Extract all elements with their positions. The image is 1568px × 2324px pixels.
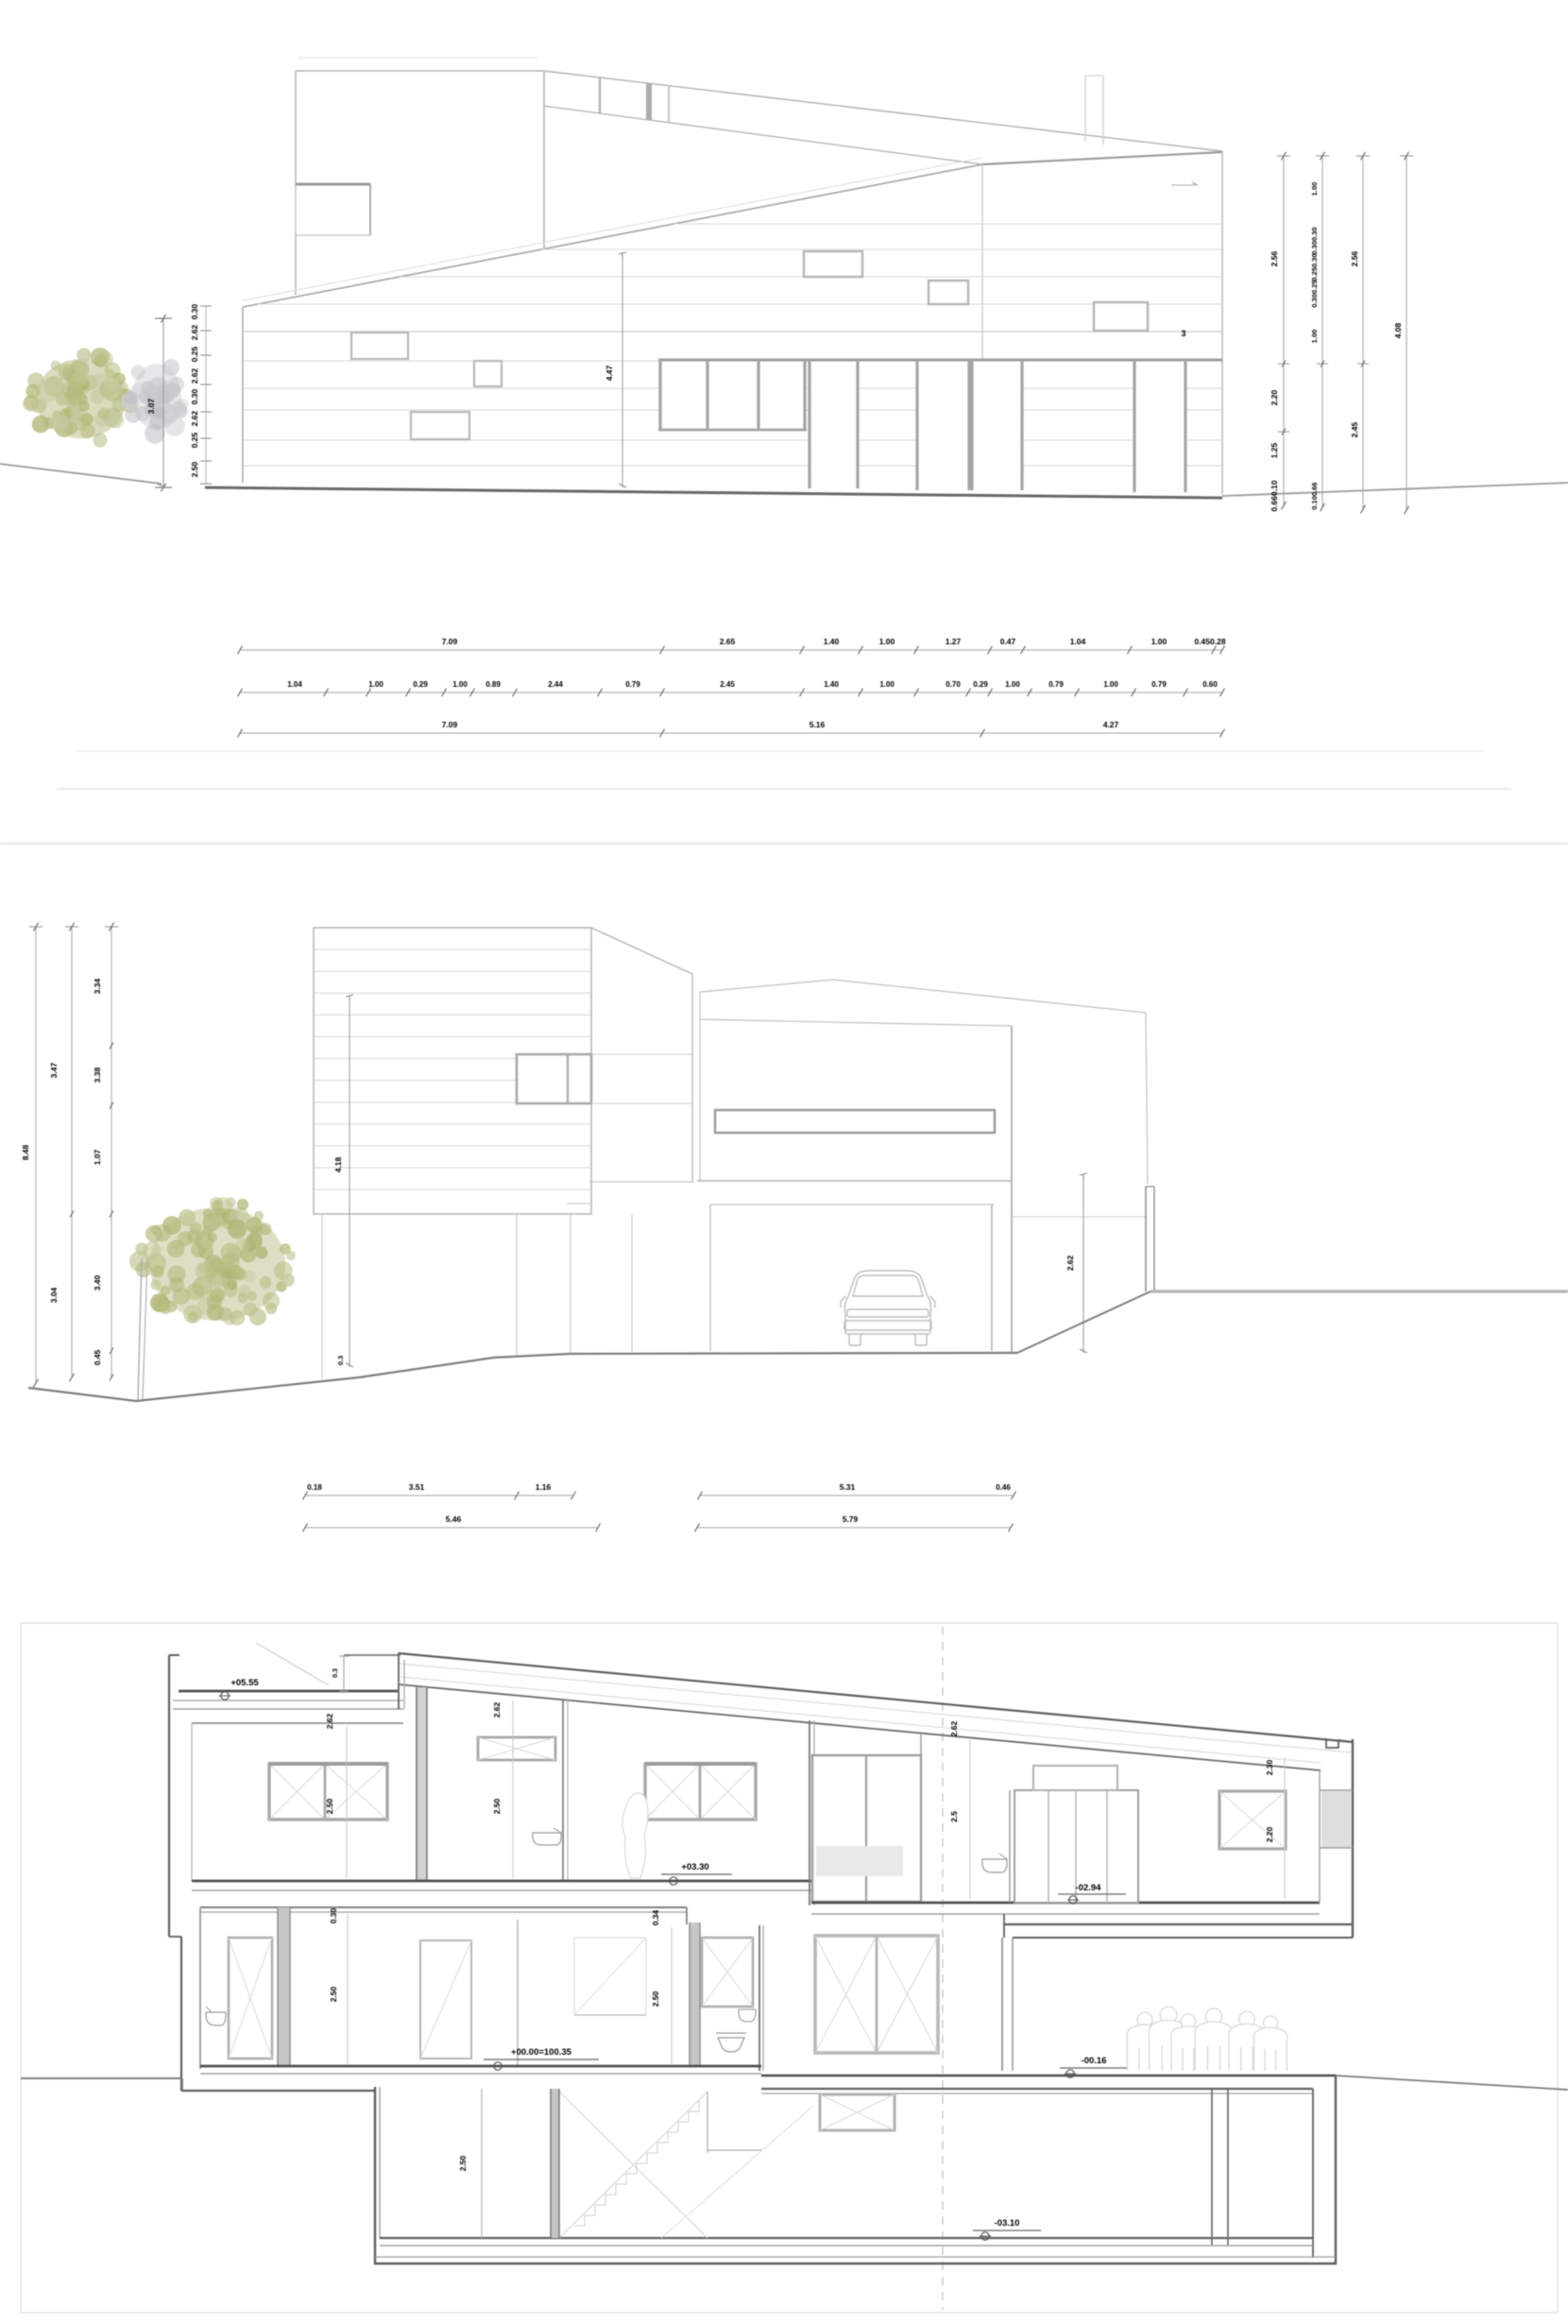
svg-text:2.62: 2.62 — [190, 324, 199, 340]
svg-text:1.04: 1.04 — [287, 680, 302, 689]
svg-text:1.00: 1.00 — [1005, 680, 1020, 689]
svg-text:2.56: 2.56 — [1350, 250, 1359, 266]
svg-text:0.30: 0.30 — [329, 1907, 338, 1923]
svg-text:2.20: 2.20 — [1265, 1826, 1274, 1842]
svg-text:1.00: 1.00 — [452, 680, 468, 689]
svg-text:5.79: 5.79 — [843, 1514, 859, 1524]
svg-text:4.27: 4.27 — [1103, 720, 1119, 729]
svg-text:1.25: 1.25 — [1270, 442, 1279, 458]
svg-text:0.79: 0.79 — [625, 680, 640, 689]
svg-text:2.62: 2.62 — [190, 367, 199, 384]
svg-text:8.48: 8.48 — [21, 1144, 30, 1160]
svg-text:0.79: 0.79 — [1048, 680, 1064, 689]
svg-text:2.30: 2.30 — [1265, 1759, 1274, 1775]
svg-text:2.62: 2.62 — [949, 1720, 959, 1736]
svg-text:5.31: 5.31 — [840, 1482, 856, 1492]
svg-text:2.44: 2.44 — [548, 680, 563, 689]
svg-text:1.00: 1.00 — [1151, 637, 1167, 646]
svg-text:1.27: 1.27 — [946, 637, 962, 646]
svg-text:4.47: 4.47 — [605, 365, 614, 381]
svg-text:2.45: 2.45 — [720, 680, 735, 689]
svg-text:0.25: 0.25 — [190, 346, 199, 362]
svg-text:0.30: 0.30 — [190, 303, 199, 319]
svg-text:1.40: 1.40 — [824, 637, 840, 646]
svg-text:+03.30: +03.30 — [681, 1862, 708, 1872]
svg-text:0.34: 0.34 — [651, 1909, 660, 1925]
svg-text:2.50: 2.50 — [190, 461, 199, 477]
svg-text:4.08: 4.08 — [1393, 322, 1403, 338]
svg-text:-00.16: -00.16 — [1082, 2056, 1107, 2066]
svg-text:0.3: 0.3 — [332, 1668, 339, 1678]
svg-text:0.660.10: 0.660.10 — [1270, 480, 1279, 511]
svg-text:1.00: 1.00 — [368, 680, 383, 689]
svg-text:0.25: 0.25 — [190, 432, 199, 448]
svg-text:1.16: 1.16 — [536, 1482, 552, 1492]
svg-text:2.5: 2.5 — [949, 1811, 959, 1822]
svg-text:0.79: 0.79 — [1151, 680, 1167, 689]
svg-text:2.45: 2.45 — [1350, 421, 1359, 437]
svg-text:1.00: 1.00 — [1103, 680, 1118, 689]
svg-text:3.07: 3.07 — [146, 398, 156, 414]
svg-text:0.30: 0.30 — [190, 388, 199, 404]
svg-text:3.04: 3.04 — [49, 1287, 59, 1303]
svg-text:2.50: 2.50 — [492, 1798, 502, 1814]
svg-text:0.45: 0.45 — [93, 1349, 102, 1365]
svg-text:3.34: 3.34 — [93, 978, 102, 994]
svg-text:1.04: 1.04 — [1070, 637, 1086, 646]
svg-text:2.50: 2.50 — [329, 1986, 338, 2002]
svg-text:3.40: 3.40 — [93, 1274, 102, 1290]
svg-text:2.65: 2.65 — [720, 637, 736, 646]
svg-text:0.29: 0.29 — [413, 680, 428, 689]
svg-text:1.00: 1.00 — [1310, 182, 1319, 197]
svg-text:2.50: 2.50 — [325, 1798, 334, 1814]
svg-text:-02.94: -02.94 — [1076, 1883, 1102, 1893]
svg-text:1.07: 1.07 — [93, 1149, 102, 1165]
svg-text:0.18: 0.18 — [307, 1483, 322, 1492]
svg-text:3.51: 3.51 — [409, 1482, 425, 1492]
svg-text:2.50: 2.50 — [458, 2155, 468, 2171]
svg-text:0.47: 0.47 — [1000, 637, 1016, 646]
svg-text:3.38: 3.38 — [93, 1067, 102, 1083]
svg-text:3: 3 — [1181, 329, 1185, 338]
svg-text:0.46: 0.46 — [996, 1483, 1011, 1492]
svg-text:0.89: 0.89 — [486, 680, 501, 689]
svg-text:0.450.28: 0.450.28 — [1194, 637, 1225, 646]
svg-text:1.00: 1.00 — [879, 637, 895, 646]
svg-text:1.00: 1.00 — [879, 680, 895, 689]
svg-text:3.47: 3.47 — [49, 1062, 59, 1078]
svg-text:1.00: 1.00 — [1310, 330, 1319, 344]
svg-text:2.56: 2.56 — [1270, 250, 1279, 266]
svg-text:7.09: 7.09 — [442, 720, 458, 729]
svg-text:+05.55: +05.55 — [230, 1678, 259, 1688]
svg-text:0.60: 0.60 — [1202, 680, 1218, 689]
svg-text:0.3: 0.3 — [336, 1356, 345, 1365]
svg-text:2.62: 2.62 — [190, 410, 199, 426]
svg-text:2.62: 2.62 — [325, 1713, 334, 1729]
svg-text:2.20: 2.20 — [1270, 389, 1279, 405]
svg-text:5.16: 5.16 — [810, 720, 826, 729]
svg-text:+00.00=100.35: +00.00=100.35 — [511, 2047, 572, 2058]
svg-text:2.62: 2.62 — [492, 1701, 502, 1717]
svg-text:-03.10: -03.10 — [995, 2218, 1020, 2229]
svg-text:0.70: 0.70 — [946, 680, 961, 689]
svg-text:0.300.30: 0.300.30 — [1310, 227, 1319, 254]
svg-text:0.29: 0.29 — [973, 680, 988, 689]
svg-text:0.300.25: 0.300.25 — [1310, 280, 1319, 307]
svg-text:1.40: 1.40 — [824, 680, 839, 689]
svg-text:2.62: 2.62 — [1065, 1255, 1075, 1271]
svg-text:0.100.66: 0.100.66 — [1310, 482, 1319, 509]
svg-text:4.18: 4.18 — [333, 1156, 343, 1172]
svg-text:5.46: 5.46 — [446, 1514, 462, 1524]
svg-text:0.250.30: 0.250.30 — [1310, 253, 1319, 281]
svg-text:2.50: 2.50 — [651, 1991, 660, 2007]
svg-text:7.09: 7.09 — [442, 637, 458, 646]
